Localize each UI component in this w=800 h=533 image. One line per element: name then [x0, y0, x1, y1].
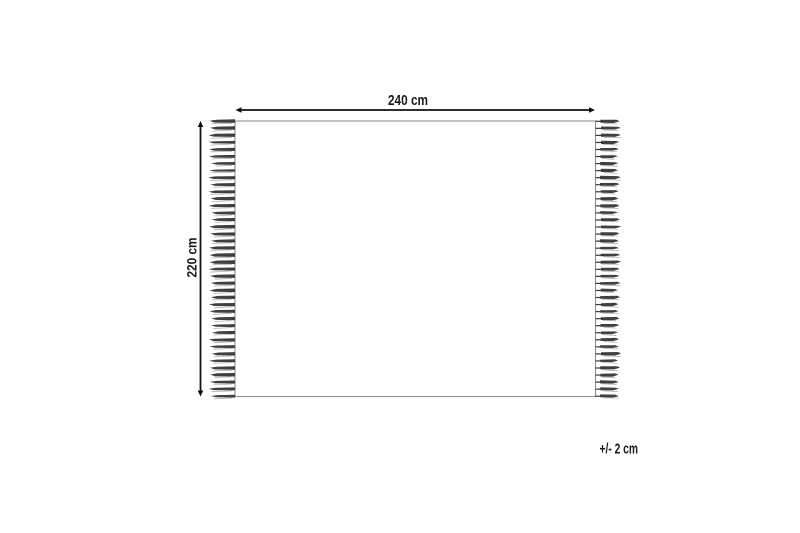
svg-text:+/- 2 cm: +/- 2 cm: [600, 441, 639, 458]
svg-text:220 cm: 220 cm: [184, 238, 200, 278]
svg-text:240 cm: 240 cm: [388, 92, 428, 109]
